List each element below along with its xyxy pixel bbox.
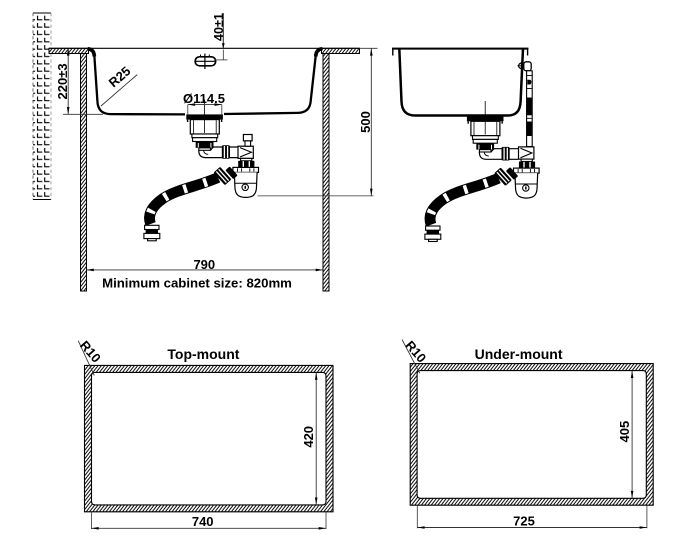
svg-text:220±3: 220±3	[55, 63, 70, 99]
svg-text:725: 725	[513, 514, 535, 529]
svg-text:40±1: 40±1	[212, 13, 226, 41]
svg-text:500: 500	[358, 111, 373, 133]
svg-text:790: 790	[193, 257, 215, 272]
svg-text:740: 740	[192, 514, 214, 529]
svg-text:Top-mount: Top-mount	[167, 346, 239, 362]
svg-text:405: 405	[617, 421, 632, 443]
svg-text:Ø114.5: Ø114.5	[183, 91, 225, 106]
svg-text:Minimum cabinet size: 820mm: Minimum cabinet size: 820mm	[102, 276, 292, 291]
svg-text:420: 420	[301, 426, 316, 448]
svg-text:Under-mount: Under-mount	[475, 346, 563, 362]
